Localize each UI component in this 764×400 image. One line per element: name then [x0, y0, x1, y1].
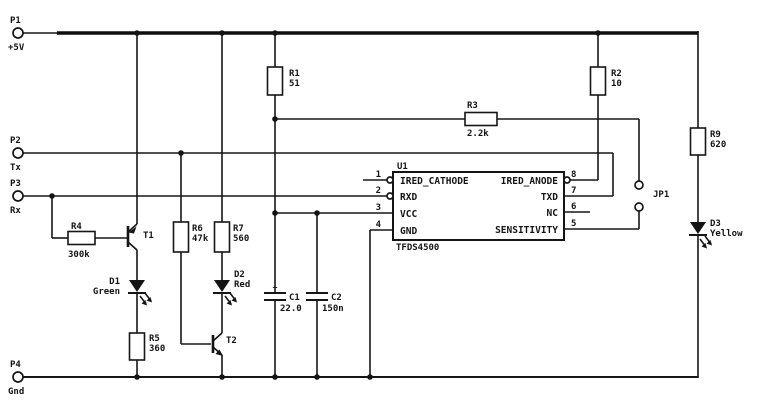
- port-id: P3: [10, 179, 21, 189]
- port-signal: +5V: [8, 43, 25, 53]
- cap-polarity: +: [273, 283, 278, 292]
- pin-name: IRED_CATHODE: [400, 176, 469, 187]
- port-p1: P1 +5V: [8, 16, 25, 53]
- led-id: D1: [109, 277, 120, 287]
- resistor-id: R9: [710, 130, 721, 140]
- resistor-value: 560: [233, 234, 249, 244]
- resistor-body: [215, 222, 230, 252]
- resistor-value: 620: [710, 140, 726, 150]
- junction-dot: [178, 150, 184, 156]
- transistor-collector: [128, 242, 137, 250]
- pin-name: VCC: [400, 209, 417, 220]
- resistor-body: [130, 333, 145, 360]
- resistor-id: R2: [611, 69, 622, 79]
- pin-name: TXD: [541, 192, 558, 203]
- pin-number: 6: [571, 202, 576, 212]
- port-signal: Rx: [10, 206, 21, 216]
- led-color: Yellow: [710, 229, 743, 239]
- led-id: D2: [234, 270, 245, 280]
- ic-u1: U1 TFDS4500 1 2 3 4 8 7 6 5 IRED_CATHODE…: [376, 162, 577, 253]
- resistor-r5: R5 360: [130, 333, 166, 360]
- port-p3: P3 Rx: [10, 179, 23, 216]
- port-id: P4: [10, 360, 21, 370]
- terminal-circle: [13, 372, 23, 382]
- led-id: D3: [710, 219, 721, 229]
- jumper-pin-circle: [635, 181, 643, 189]
- junction-dot: [272, 116, 278, 122]
- junction-dot: [272, 374, 278, 380]
- junction-dot: [219, 374, 225, 380]
- schematic-canvas: P1 +5V P2 Tx P3 Rx P4 Gnd R1 51 R2 10 R3…: [0, 0, 764, 400]
- resistor-r7: R7 560: [215, 222, 250, 252]
- capacitor-c1: + C1 22.0: [264, 283, 302, 314]
- resistor-body: [691, 128, 706, 155]
- junction-dot: [314, 210, 320, 216]
- led-d1: D1 Green: [93, 277, 152, 306]
- resistor-body: [591, 67, 606, 95]
- resistor-id: R3: [467, 101, 478, 111]
- pin-name: SENSITIVITY: [495, 225, 558, 236]
- pin-number: 2: [376, 186, 381, 196]
- transistor-id: T1: [143, 231, 154, 241]
- pin-name: RXD: [400, 192, 417, 203]
- junction-dot: [272, 30, 278, 36]
- resistor-r6: R6 47k: [174, 222, 209, 252]
- jumper-id: JP1: [653, 190, 669, 200]
- pin-number: 7: [571, 186, 576, 196]
- jumper-pin-circle: [635, 203, 643, 211]
- resistor-body: [68, 232, 95, 245]
- junction-dot: [314, 374, 320, 380]
- resistor-r3: R3 2.2k: [465, 101, 497, 139]
- pin-bubble: [387, 177, 393, 183]
- port-signal: Tx: [10, 163, 21, 173]
- port-p2: P2 Tx: [10, 136, 23, 173]
- pin-bubble: [387, 193, 393, 199]
- cap-value: 22.0: [280, 304, 302, 314]
- resistor-body: [268, 67, 283, 95]
- led-color: Red: [234, 280, 250, 290]
- resistor-value: 51: [289, 79, 300, 89]
- led-color: Green: [93, 287, 120, 297]
- led-triangle: [690, 222, 706, 234]
- pin-number: 1: [376, 170, 381, 180]
- transistor-t2: T2: [213, 333, 237, 356]
- schematic-page: P1 +5V P2 Tx P3 Rx P4 Gnd R1 51 R2 10 R3…: [0, 0, 764, 400]
- resistor-r1: R1 51: [268, 67, 300, 95]
- resistor-body: [174, 222, 189, 252]
- led-d2: D2 Red: [213, 270, 250, 306]
- ic-ref: U1: [397, 162, 408, 172]
- pin-name: NC: [547, 208, 559, 219]
- resistor-value: 2.2k: [467, 129, 489, 139]
- resistor-r2: R2 10: [591, 67, 622, 95]
- junction-dot: [367, 374, 373, 380]
- transistor-t1: T1: [128, 224, 154, 250]
- cap-id: C1: [289, 293, 300, 303]
- resistor-value: 10: [611, 79, 622, 89]
- junction-dot: [134, 30, 140, 36]
- led-triangle: [129, 280, 145, 292]
- port-id: P1: [10, 16, 21, 26]
- junction-dots: [49, 30, 601, 380]
- pin-bubble: [564, 177, 570, 183]
- transistor-collector: [213, 333, 222, 341]
- jumper-jp1: JP1: [635, 181, 669, 211]
- junction-dot: [134, 374, 140, 380]
- resistor-body: [465, 113, 497, 126]
- pin-name: GND: [400, 226, 417, 237]
- resistor-r4: R4 300k: [68, 222, 95, 260]
- resistor-value: 360: [149, 344, 165, 354]
- capacitor-c2: C2 150n: [306, 293, 344, 314]
- resistor-value: 47k: [192, 234, 209, 244]
- cap-id: C2: [331, 293, 342, 303]
- pin-number: 8: [571, 170, 576, 180]
- led-triangle: [214, 280, 230, 292]
- ic-part-number: TFDS4500: [396, 243, 439, 253]
- terminal-circle: [13, 28, 23, 38]
- terminal-circle: [13, 191, 23, 201]
- resistor-id: R5: [149, 334, 160, 344]
- junction-dot: [219, 30, 225, 36]
- resistor-id: R4: [71, 222, 82, 232]
- terminal-circle: [13, 148, 23, 158]
- pin-name: IRED_ANODE: [501, 176, 558, 187]
- resistor-value: 300k: [68, 250, 90, 260]
- port-p4: P4 Gnd: [8, 360, 24, 397]
- resistor-id: R1: [289, 69, 300, 79]
- transistor-id: T2: [226, 336, 237, 346]
- cap-value: 150n: [322, 304, 344, 314]
- port-id: P2: [10, 136, 21, 146]
- port-signal: Gnd: [8, 387, 24, 397]
- pin-number: 5: [571, 219, 576, 229]
- resistor-id: R6: [192, 224, 203, 234]
- led-d3: D3 Yellow: [689, 219, 743, 249]
- resistor-id: R7: [233, 224, 244, 234]
- pin-number: 4: [376, 220, 382, 230]
- junction-dot: [49, 193, 55, 199]
- pin-number: 3: [376, 203, 381, 213]
- junction-dot: [595, 30, 601, 36]
- resistor-r9: R9 620: [691, 128, 727, 155]
- junction-dot: [272, 210, 278, 216]
